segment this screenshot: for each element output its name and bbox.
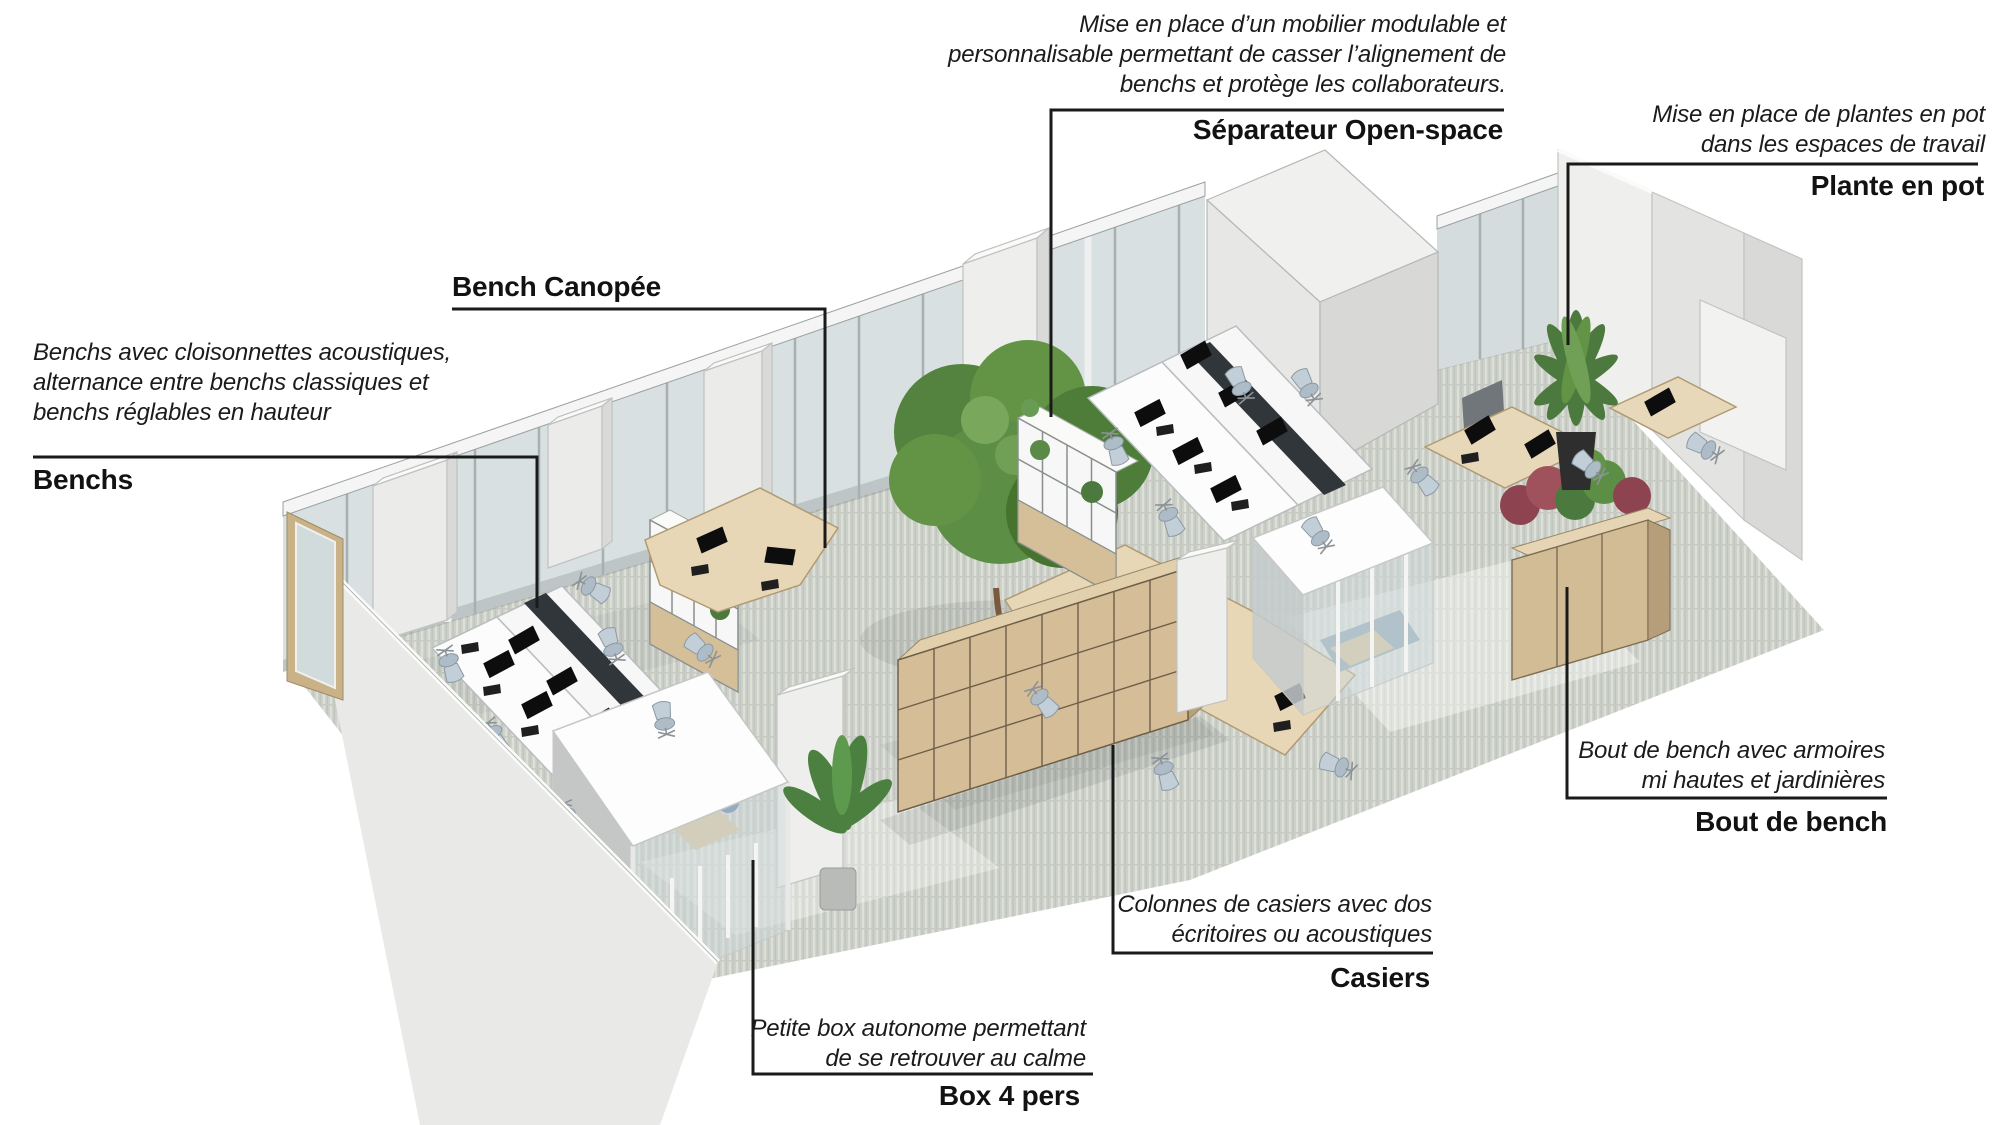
bout-de-bench-description: Bout de bench avec armoires mi hautes et…: [1578, 736, 1885, 796]
benchs-description: Benchs avec cloisonnettes acoustiques, a…: [33, 338, 451, 428]
separateur-description: Mise en place d’un mobilier modulable et…: [948, 10, 1506, 100]
casiers-label: Casiers: [1330, 962, 1430, 994]
bout-de-bench-label: Bout de bench: [1695, 806, 1887, 838]
box-4-pers-label: Box 4 pers: [939, 1080, 1080, 1112]
office-3d-render: [0, 0, 2000, 1125]
wood-framed-door: [287, 512, 343, 700]
plante-en-pot-label: Plante en pot: [1811, 170, 1984, 202]
benchs-label: Benchs: [33, 464, 133, 496]
bench-canopee-label: Bench Canopée: [452, 271, 661, 303]
office-annotated-diagram: Mise en place d’un mobilier modulable et…: [0, 0, 2000, 1125]
plante-en-pot-description: Mise en place de plantes en pot dans les…: [1652, 100, 1985, 160]
separateur-label: Séparateur Open-space: [1193, 114, 1503, 146]
casiers-description: Colonnes de casiers avec dos écritoires …: [1117, 890, 1432, 950]
box-4-pers-description: Petite box autonome permettant de se ret…: [750, 1014, 1086, 1074]
